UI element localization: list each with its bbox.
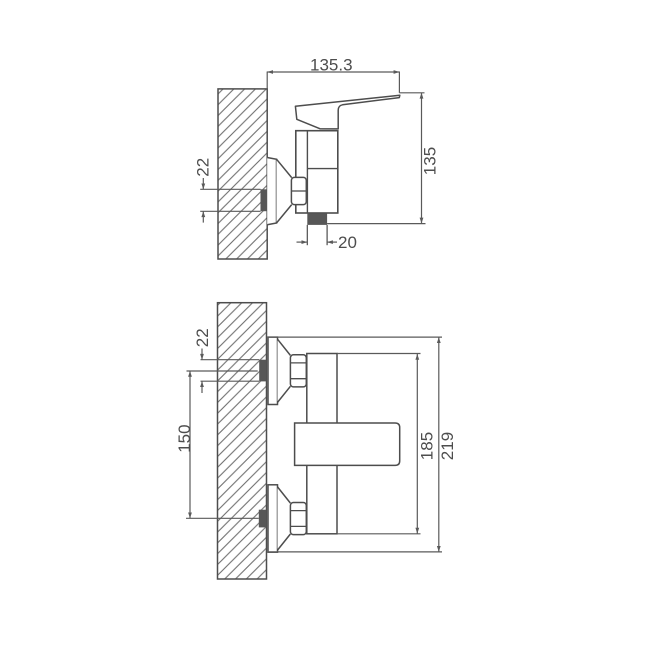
- svg-text:22: 22: [193, 328, 212, 347]
- svg-text:22: 22: [193, 158, 212, 177]
- svg-text:20: 20: [338, 233, 357, 252]
- svg-text:150: 150: [175, 424, 194, 452]
- svg-text:135: 135: [420, 147, 439, 175]
- svg-text:219: 219: [438, 432, 457, 460]
- svg-text:135.3: 135.3: [310, 56, 353, 75]
- svg-text:185: 185: [418, 432, 437, 460]
